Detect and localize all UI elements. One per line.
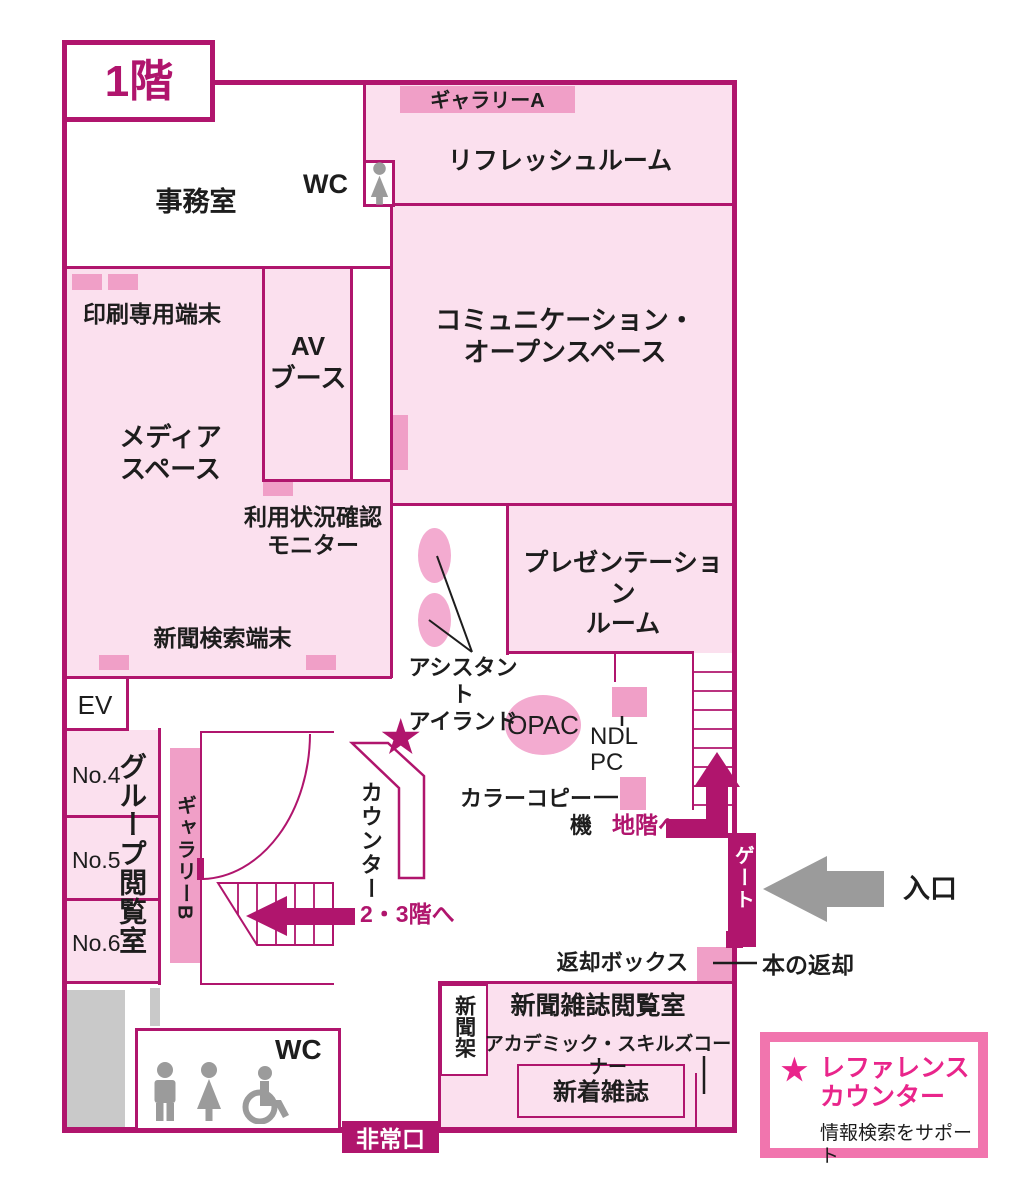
wheelchair-icon: [234, 1066, 292, 1124]
to-floor23-arrow: [246, 896, 355, 936]
wall-comm-bottom: [390, 503, 737, 506]
wall-comm-left: [390, 205, 393, 678]
usage-monitor-unit: [263, 481, 293, 496]
wall-media-top: [62, 266, 392, 269]
male-icon: [150, 1062, 180, 1122]
entrance-label: 入口: [903, 873, 973, 906]
academic-corner-label: アカデミック・スキルズコーナー: [480, 1033, 736, 1079]
female-icon-bottom: [194, 1062, 224, 1122]
entrance-arrow: [763, 856, 884, 922]
ev-label: EV: [62, 690, 128, 722]
color-copier-label: カラーコピー機: [442, 786, 592, 840]
office-label: 事務室: [116, 186, 276, 219]
ndl-pc-unit: [612, 687, 647, 717]
comm-space-unit: [393, 415, 408, 470]
wall-group-right: [158, 728, 161, 985]
communication-label: コミュニケーション・ オープンスペース: [420, 305, 710, 368]
av-booth-label: AV ブース: [264, 331, 352, 394]
wall-presentation-left: [506, 505, 509, 655]
floor-title: 1階: [70, 55, 208, 109]
refresh-room-label: リフレッシュルーム: [400, 146, 720, 177]
outer-wall-top: [210, 80, 737, 85]
female-icon: [367, 162, 392, 205]
assistant-island-desk-2: [418, 593, 451, 647]
wall-refresh-bottom: [363, 203, 734, 206]
legend-title: レファレンス カウンター: [820, 1054, 980, 1112]
pillar-block-small: [150, 988, 160, 1026]
group-rooms-label: グループ閲覧室: [114, 752, 148, 967]
color-copier-unit: [620, 777, 646, 810]
print-terminal-unit-1: [72, 274, 102, 290]
newspaper-terminal-label: 新聞検索端末: [145, 624, 300, 652]
door-swing-arc: [203, 734, 310, 879]
wc-bottom-label: WC: [275, 1033, 335, 1067]
wall-lobby-door: [197, 858, 204, 880]
to-basement-label: 地階へ: [612, 811, 687, 839]
assistant-island-desk-1: [418, 528, 451, 583]
wall-newsroom-notch: [695, 1073, 697, 1133]
gallery-b-label: ギャラリーB: [172, 758, 196, 958]
counter-label: カウンター: [356, 781, 383, 906]
legend-star-icon: ★: [781, 1056, 808, 1086]
wc-top-label: WC: [303, 168, 363, 201]
wall-office-refresh: [363, 83, 366, 162]
pillar-block: [65, 990, 125, 1127]
legend-subtitle: 情報検索をサポート: [820, 1122, 985, 1168]
print-terminal-label: 印刷専用端末: [83, 300, 253, 328]
print-terminal-unit-2: [108, 274, 138, 290]
return-box-label: 返却ボックス: [535, 950, 688, 977]
stairs-steps-bottom: [238, 883, 314, 945]
media-space-label: メディア スペース: [88, 422, 253, 485]
book-return-label: 本の返却: [762, 951, 877, 979]
new-magazines-label: 新着雑誌: [517, 1078, 685, 1107]
return-box: [697, 947, 737, 983]
wall-lobby-bottom: [200, 983, 334, 985]
stairs-to-upper-floors: [218, 883, 333, 945]
floor-map-1f: 1階 事務室 WC ギャラリーA リフレッシュルーム コミュニケーション・ オー…: [0, 0, 1024, 1200]
reference-counter-star: ★: [381, 716, 420, 760]
corridor-white: [352, 268, 392, 480]
wall-av-bottom: [262, 479, 392, 482]
newspaper-terminal-unit-2: [306, 655, 336, 670]
stairs-steps-right: [694, 672, 735, 805]
presentation-label: プレゼンテーション ルーム: [512, 548, 734, 640]
wall-ndl-notch: [614, 651, 616, 682]
wall-media-bottom: [62, 676, 392, 679]
newspaper-terminal-unit-1: [99, 655, 129, 670]
wall-group-bottom: [62, 981, 161, 984]
legend-box: ★ レファレンス カウンター 情報検索をサポート: [760, 1032, 988, 1158]
wall-lobby-top: [200, 731, 334, 733]
ndl-pc-label: NDL PC: [590, 724, 650, 777]
outer-wall-left: [62, 83, 67, 1131]
to-floor23-label: 2・3階へ: [360, 900, 475, 928]
newspaper-rack-label: 新聞架: [451, 995, 477, 1070]
gate-label: ゲート: [730, 845, 754, 940]
wall-ev-bottom: [62, 728, 129, 731]
gallery-a-label: ギャラリーA: [400, 89, 575, 113]
wall-stairs-left: [692, 653, 694, 810]
emergency-exit-label: 非常口: [342, 1125, 439, 1153]
newspaper-room-label: 新聞雑誌閲覧室: [488, 991, 708, 1022]
usage-monitor-label: 利用状況確認 モニター: [228, 503, 398, 559]
opac-label: OPAC: [505, 710, 581, 742]
wall-presentation-bottom: [506, 651, 694, 654]
